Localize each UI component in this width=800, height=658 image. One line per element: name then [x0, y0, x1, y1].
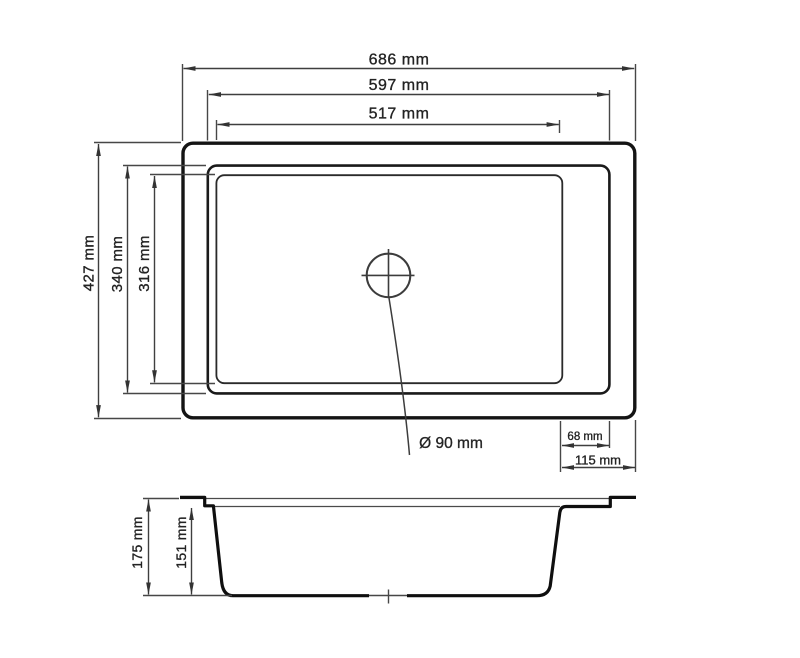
svg-text:115 mm: 115 mm: [575, 453, 621, 468]
svg-text:68 mm: 68 mm: [567, 431, 602, 443]
svg-text:597 mm: 597 mm: [369, 77, 430, 94]
svg-text:517 mm: 517 mm: [369, 106, 430, 123]
svg-text:340 mm: 340 mm: [109, 236, 126, 293]
svg-text:686 mm: 686 mm: [369, 52, 430, 69]
svg-text:151 mm: 151 mm: [173, 516, 189, 568]
svg-text:427 mm: 427 mm: [81, 235, 98, 292]
svg-text:316 mm: 316 mm: [136, 235, 153, 292]
svg-text:Ø 90 mm: Ø 90 mm: [419, 435, 483, 452]
svg-text:175 mm: 175 mm: [129, 516, 145, 568]
